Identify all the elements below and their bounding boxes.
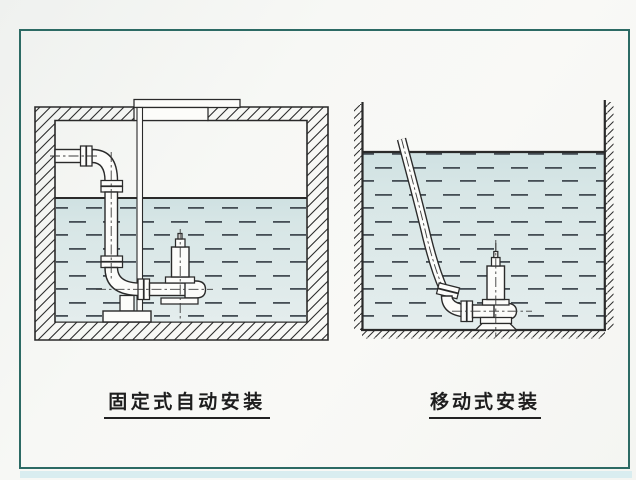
floor-hatching	[362, 331, 605, 339]
pedestal-base	[103, 311, 151, 322]
pipe-coupling	[101, 187, 123, 193]
scanned-manual-page: 固定式自动安装 移动式安装	[0, 0, 636, 480]
wall-hatching-left	[354, 104, 362, 330]
pipe-coupling	[101, 262, 123, 268]
pump-base-strip	[161, 298, 198, 304]
fixed-installation-diagram	[35, 100, 328, 341]
pipe-coupling	[101, 256, 123, 262]
pipe-coupling	[101, 181, 123, 187]
mobile-installation-diagram	[354, 100, 614, 339]
wall-hatching-right	[606, 102, 614, 330]
mobile-installation-label: 移动式安装	[429, 387, 541, 419]
discharge-elbow-upper	[92, 150, 118, 182]
duckfoot-support	[120, 296, 134, 312]
access-cover-plate	[134, 100, 240, 108]
fixed-installation-label: 固定式自动安装	[104, 387, 270, 419]
opening-cover	[134, 108, 208, 121]
